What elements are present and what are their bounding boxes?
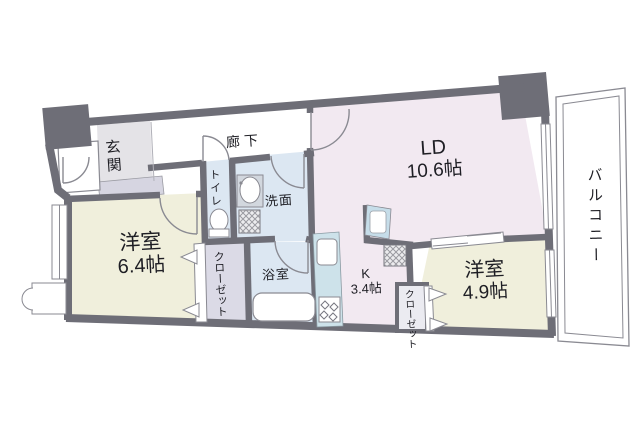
label-living-dining: LD 10.6帖 (388, 134, 481, 185)
label-entrance: 玄関 (103, 138, 123, 175)
western-room-main-size: 6.4帖 (96, 253, 187, 281)
pipe-space-kitchen (384, 245, 406, 266)
stove (319, 297, 340, 322)
label-hallway: 廊下 (225, 132, 262, 151)
label-closet-sub: クローゼット (401, 289, 416, 327)
pillar-top-left (42, 104, 91, 150)
label-bathroom: 浴室 (262, 267, 291, 283)
label-western-room-sub: 洋室 4.9帖 (439, 257, 531, 306)
label-toilet: トイレ (207, 169, 222, 209)
washbasin (237, 175, 263, 207)
floorplan: 玄関 廊下 トイレ 洗面 浴室 クローゼット クローゼット 洋室 6.4帖 LD… (0, 0, 640, 427)
label-balcony: バルコニー (585, 167, 604, 267)
label-washroom: 洗面 (265, 193, 294, 210)
floorplan-drawing (0, 0, 640, 427)
service-alcove (22, 283, 66, 314)
bathtub (253, 293, 315, 321)
label-kitchen: K 3.4帖 (335, 265, 396, 298)
service-door-arc (22, 288, 33, 310)
toilet-fixture (209, 209, 229, 237)
kitchen-sink (317, 239, 337, 265)
refrigerator-pan (370, 211, 386, 233)
entrance-porch (58, 141, 100, 193)
label-closet-main: クローゼット (210, 251, 227, 292)
pipe-space-washroom (239, 210, 260, 233)
label-western-room-main: 洋室 6.4帖 (95, 229, 187, 281)
kitchen-size: 3.4帖 (336, 280, 397, 298)
